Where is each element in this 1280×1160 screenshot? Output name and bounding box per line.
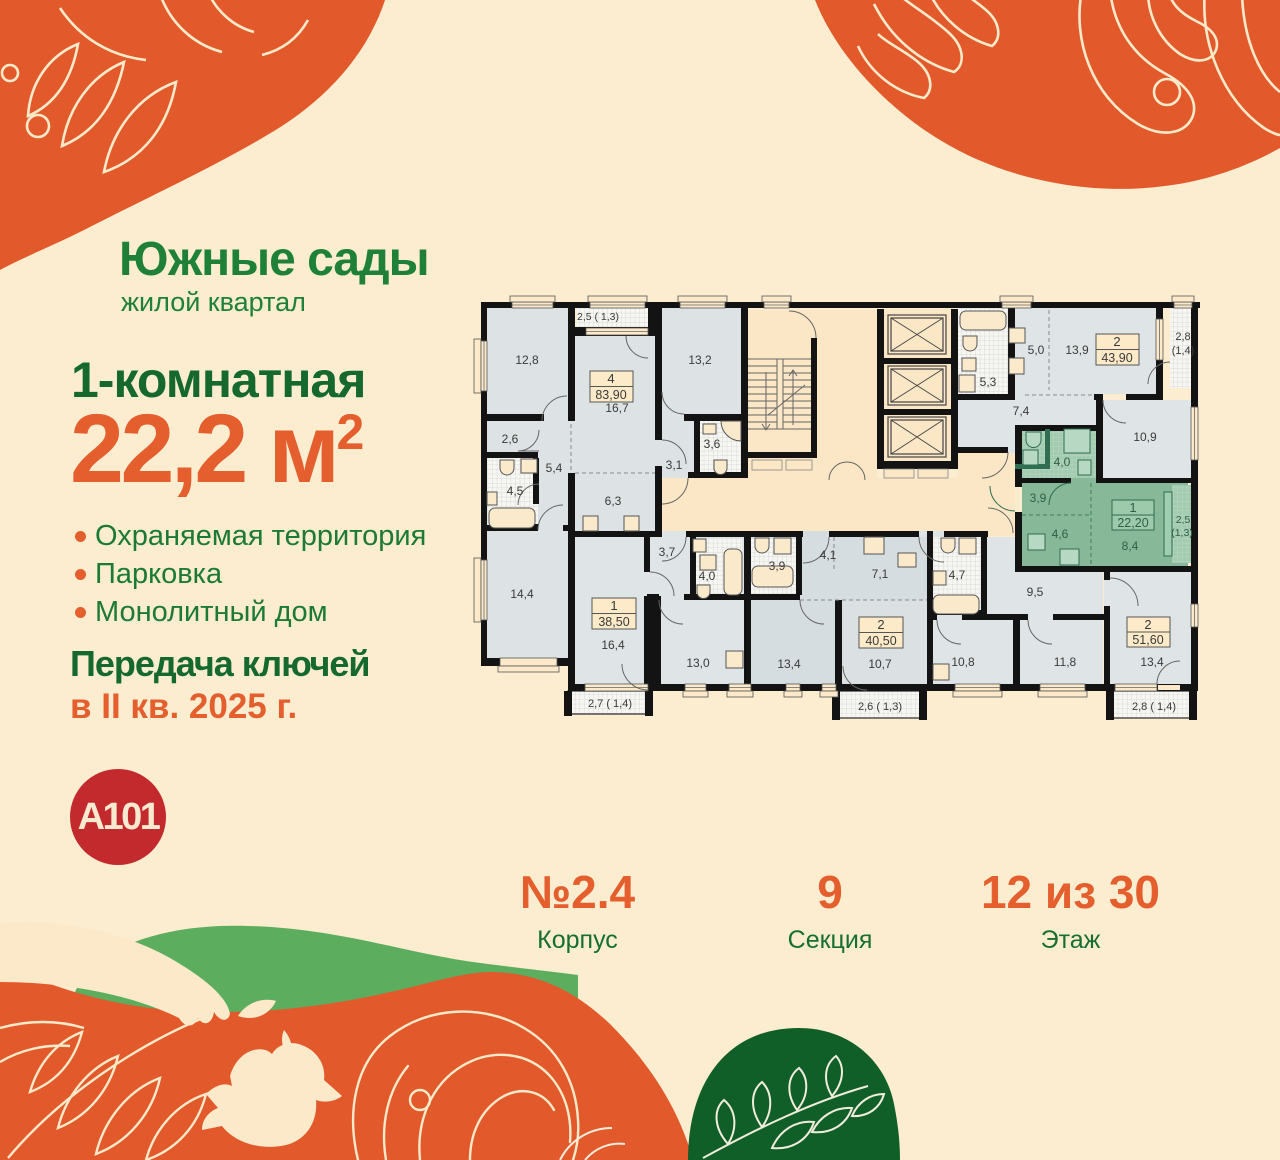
svg-text:10,9: 10,9 [1133,430,1157,444]
svg-text:(1,4): (1,4) [1172,345,1195,357]
svg-text:4,0: 4,0 [699,569,716,583]
svg-text:6,3: 6,3 [605,494,622,508]
svg-text:13,0: 13,0 [686,656,710,670]
svg-text:11,8: 11,8 [1054,655,1077,669]
svg-text:(1,3): (1,3) [1171,527,1193,539]
svg-text:5,0: 5,0 [1028,343,1045,357]
svg-text:16,7: 16,7 [605,401,629,415]
svg-text:4: 4 [607,371,614,386]
svg-text:2,8: 2,8 [1175,331,1190,343]
svg-text:4,6: 4,6 [1052,527,1069,541]
svg-text:5,3: 5,3 [980,375,997,389]
svg-text:1: 1 [610,598,617,613]
svg-text:2,5: 2,5 [1176,514,1191,526]
svg-text:3,6: 3,6 [704,437,721,451]
svg-text:4,5: 4,5 [507,484,524,498]
svg-text:9,5: 9,5 [1027,585,1044,599]
svg-text:2,6 ( 1,3): 2,6 ( 1,3) [858,701,902,713]
svg-text:4,7: 4,7 [949,568,966,582]
svg-text:13,4: 13,4 [777,657,801,671]
svg-text:2,8 ( 1,4): 2,8 ( 1,4) [1132,701,1176,713]
svg-text:22,20: 22,20 [1117,516,1148,530]
svg-text:2,7 ( 1,4): 2,7 ( 1,4) [588,698,632,710]
svg-text:12,8: 12,8 [515,353,539,367]
svg-text:3,7: 3,7 [659,545,676,559]
svg-text:43,90: 43,90 [1101,351,1132,365]
svg-text:13,2: 13,2 [688,353,712,367]
svg-text:8,4: 8,4 [1122,539,1139,553]
svg-text:2,5 ( 1,3): 2,5 ( 1,3) [577,311,619,323]
svg-text:3,9: 3,9 [1030,491,1047,505]
svg-text:83,90: 83,90 [595,388,626,402]
svg-text:2: 2 [1113,334,1120,349]
svg-text:14,4: 14,4 [510,587,534,601]
svg-text:1: 1 [1129,500,1136,515]
svg-text:2: 2 [877,617,884,632]
svg-text:2: 2 [1144,617,1151,632]
svg-text:13,9: 13,9 [1065,343,1089,357]
svg-text:40,50: 40,50 [865,634,896,648]
svg-text:3,1: 3,1 [666,458,683,472]
svg-text:3,9: 3,9 [769,559,786,573]
svg-text:2,6: 2,6 [502,432,519,446]
svg-text:38,50: 38,50 [598,615,629,629]
svg-text:13,4: 13,4 [1140,655,1164,669]
svg-text:7,1: 7,1 [872,567,889,581]
svg-text:5,4: 5,4 [546,461,563,475]
svg-text:4,0: 4,0 [1054,455,1071,469]
svg-text:4,1: 4,1 [820,548,837,562]
svg-text:10,8: 10,8 [951,655,975,669]
svg-text:51,60: 51,60 [1132,633,1163,647]
svg-text:7,4: 7,4 [1013,404,1030,418]
svg-text:10,7: 10,7 [868,657,892,671]
svg-text:16,4: 16,4 [601,638,625,652]
